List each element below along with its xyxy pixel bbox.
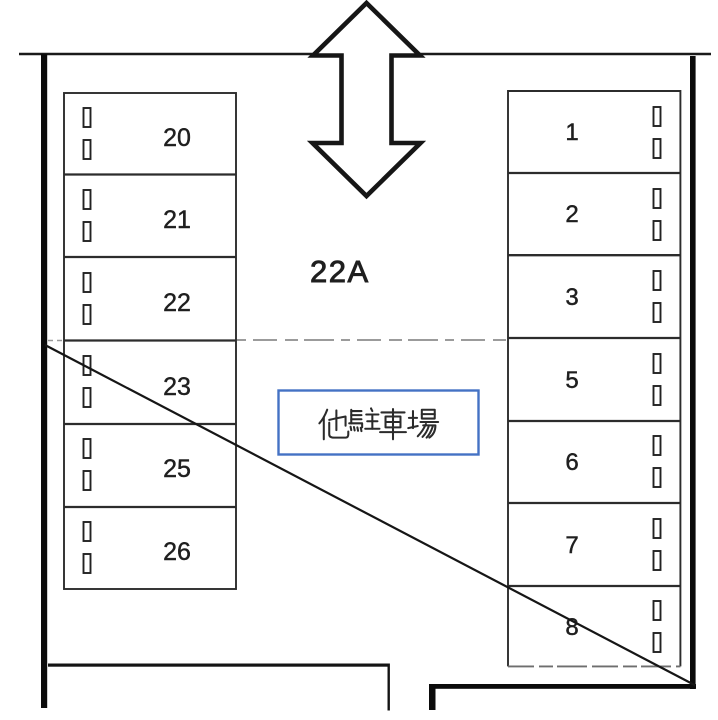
svg-text:3: 3 <box>565 284 578 311</box>
svg-text:23: 23 <box>163 373 191 401</box>
svg-text:25: 25 <box>163 455 191 483</box>
svg-text:26: 26 <box>163 538 191 566</box>
svg-text:2: 2 <box>565 201 578 228</box>
svg-text:7: 7 <box>565 532 578 559</box>
svg-text:22A: 22A <box>310 254 370 289</box>
svg-text:5: 5 <box>565 367 578 394</box>
svg-text:20: 20 <box>163 124 191 152</box>
svg-text:6: 6 <box>565 449 578 476</box>
svg-text:1: 1 <box>565 119 578 146</box>
svg-text:22: 22 <box>163 289 191 317</box>
svg-text:21: 21 <box>163 206 191 234</box>
